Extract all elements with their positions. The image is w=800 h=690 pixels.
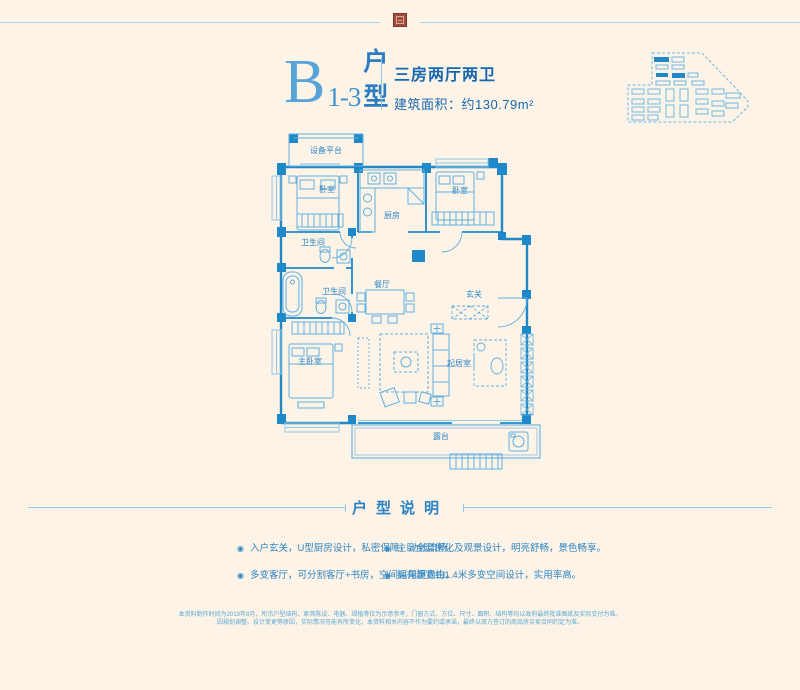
disclaimer-line-1: 本资料制作时间为2019年8月，所示户型结构、家具陈设、电器、绿植等仅为示意参考… bbox=[0, 611, 800, 619]
room-label-foyer: 玄关 bbox=[466, 289, 482, 299]
unit-word-bottom: 型 bbox=[363, 85, 388, 110]
bullet-icon: ◉ bbox=[237, 570, 244, 581]
site-buildings bbox=[632, 57, 740, 120]
top-rule-left bbox=[0, 22, 380, 23]
unit-word: 户 型 bbox=[363, 50, 388, 110]
floorplan-page: B 1-3 户 型 三房两厅两卫 建筑面积：约130.79m² bbox=[0, 0, 800, 690]
terrace-steps bbox=[450, 454, 502, 469]
room-label-kitchen: 厨房 bbox=[384, 210, 400, 220]
room-label-equipment-platform: 设备平台 bbox=[310, 145, 342, 155]
desc-rule-right bbox=[463, 507, 772, 508]
bed-icon bbox=[289, 176, 347, 230]
unit-letter: B bbox=[284, 54, 325, 110]
bay-windows bbox=[272, 159, 488, 432]
top-rule-right bbox=[420, 22, 800, 23]
unit-title: B 1-3 户 型 bbox=[284, 50, 388, 110]
room-label-bath-1: 卫生间 bbox=[301, 237, 325, 247]
room-label-bedroom-left: 卧室 bbox=[319, 184, 335, 194]
bullet-icon: ◉ bbox=[384, 570, 391, 581]
title-divider bbox=[381, 57, 382, 110]
desc-bullet-4: ◉ 拥有超宽约1.4米多变空间设计，实用率高。 bbox=[384, 570, 581, 581]
room-label-dining: 餐厅 bbox=[374, 280, 390, 289]
disclaimer-line-2: 因规划调整、设计变更等原因，实际情况可能有所变化，本资料相关内容不作为要约或承诺… bbox=[0, 619, 800, 627]
seal-icon bbox=[393, 13, 407, 27]
area-text: 建筑面积：约130.79m² bbox=[394, 94, 534, 113]
site-highlighted-buildings bbox=[654, 57, 685, 78]
washing-machine-icon bbox=[509, 432, 528, 451]
bullet-icon: ◉ bbox=[384, 543, 391, 554]
flex-space-divider bbox=[358, 338, 369, 388]
wall-piers bbox=[277, 134, 531, 424]
sofa-set-icon bbox=[380, 324, 449, 407]
terrace-rail bbox=[352, 425, 540, 458]
room-label-living-room: 起居室 bbox=[447, 358, 471, 368]
desc-rule-right-tick bbox=[463, 504, 464, 512]
unit-number: 1-3 bbox=[327, 85, 360, 109]
dining-table-icon bbox=[357, 290, 414, 323]
room-label-terrace: 露台 bbox=[433, 431, 449, 441]
floor-plan: 设备平台 卧室 厨房 卧室 卫生间 卫生间 餐厅 玄关 主卧室 起居室 露台 bbox=[258, 120, 558, 480]
bullet-icon: ◉ bbox=[237, 543, 244, 554]
door-arcs bbox=[332, 232, 527, 336]
unit-word-top: 户 bbox=[363, 50, 388, 75]
room-label-bath-2: 卫生间 bbox=[322, 286, 346, 296]
shoe-cabinet-icon bbox=[452, 306, 488, 319]
site-plan-inset bbox=[620, 45, 770, 135]
toilet-icon bbox=[320, 247, 350, 263]
unit-summary: 三房两厅两卫 建筑面积：约130.79m² bbox=[394, 61, 534, 113]
bullet-text: 主卧全套房化及观景设计，明亮舒畅，景色畅享。 bbox=[397, 543, 606, 554]
disclaimer: 本资料制作时间为2019年8月，所示户型结构、家具陈设、电器、绿植等仅为示意参考… bbox=[0, 611, 800, 627]
kitchen-counter-icon bbox=[360, 170, 424, 232]
room-label-master-bedroom: 主卧室 bbox=[298, 356, 322, 366]
bed-icon-2 bbox=[432, 172, 494, 225]
piano-icon bbox=[474, 340, 506, 386]
room-label-bedroom-right: 卧室 bbox=[452, 185, 468, 195]
layout-summary: 三房两厅两卫 bbox=[394, 61, 534, 85]
desc-bullet-2: ◉ 主卧全套房化及观景设计，明亮舒畅，景色畅享。 bbox=[384, 543, 606, 554]
room-labels: 设备平台 卧室 厨房 卧室 卫生间 卫生间 餐厅 玄关 主卧室 起居室 露台 bbox=[298, 145, 482, 441]
bullet-text: 拥有超宽约1.4米多变空间设计，实用率高。 bbox=[397, 570, 581, 581]
